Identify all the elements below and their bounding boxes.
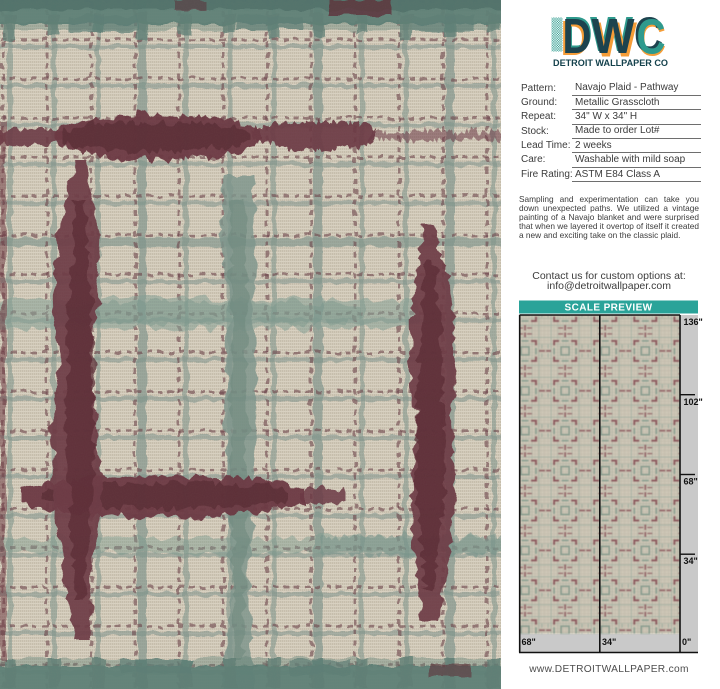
svg-text:34": 34" [684,556,698,566]
svg-text:68": 68" [684,477,698,487]
svg-text:D: D [563,10,592,64]
svg-text:34": 34" [602,637,616,647]
svg-text:0": 0" [682,637,691,647]
svg-text:68": 68" [522,637,536,647]
svg-text:136": 136" [684,317,703,327]
svg-text:C: C [637,11,666,65]
svg-text:SCALE PREVIEW: SCALE PREVIEW [565,303,653,314]
svg-text:DETROIT WALLPAPER CO: DETROIT WALLPAPER CO [553,58,668,68]
svg-text:102": 102" [684,397,703,407]
svg-text:W: W [592,10,636,64]
